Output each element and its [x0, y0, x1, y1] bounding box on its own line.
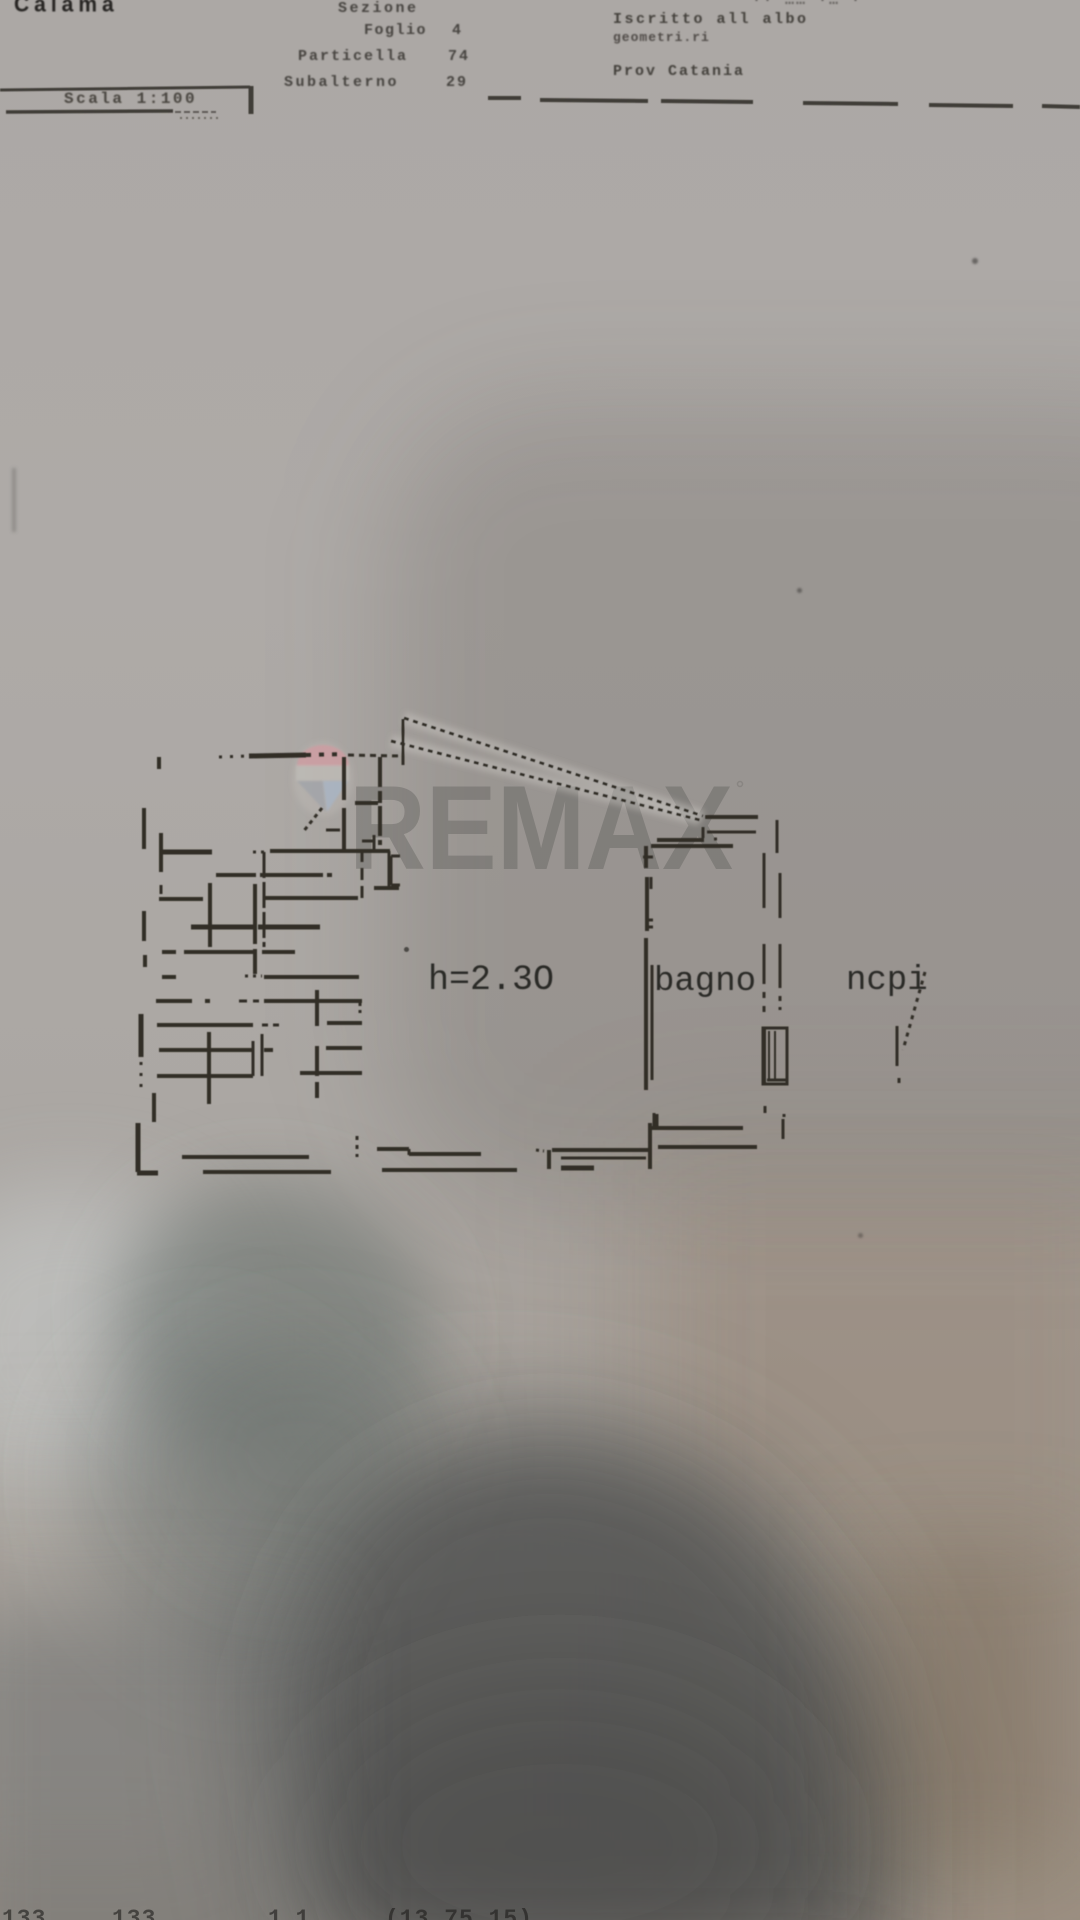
- svg-text:h=2.3O: h=2.3O: [428, 960, 554, 1000]
- svg-text:bagno: bagno: [654, 963, 756, 1001]
- svg-text:ncpi: ncpi: [846, 962, 928, 1000]
